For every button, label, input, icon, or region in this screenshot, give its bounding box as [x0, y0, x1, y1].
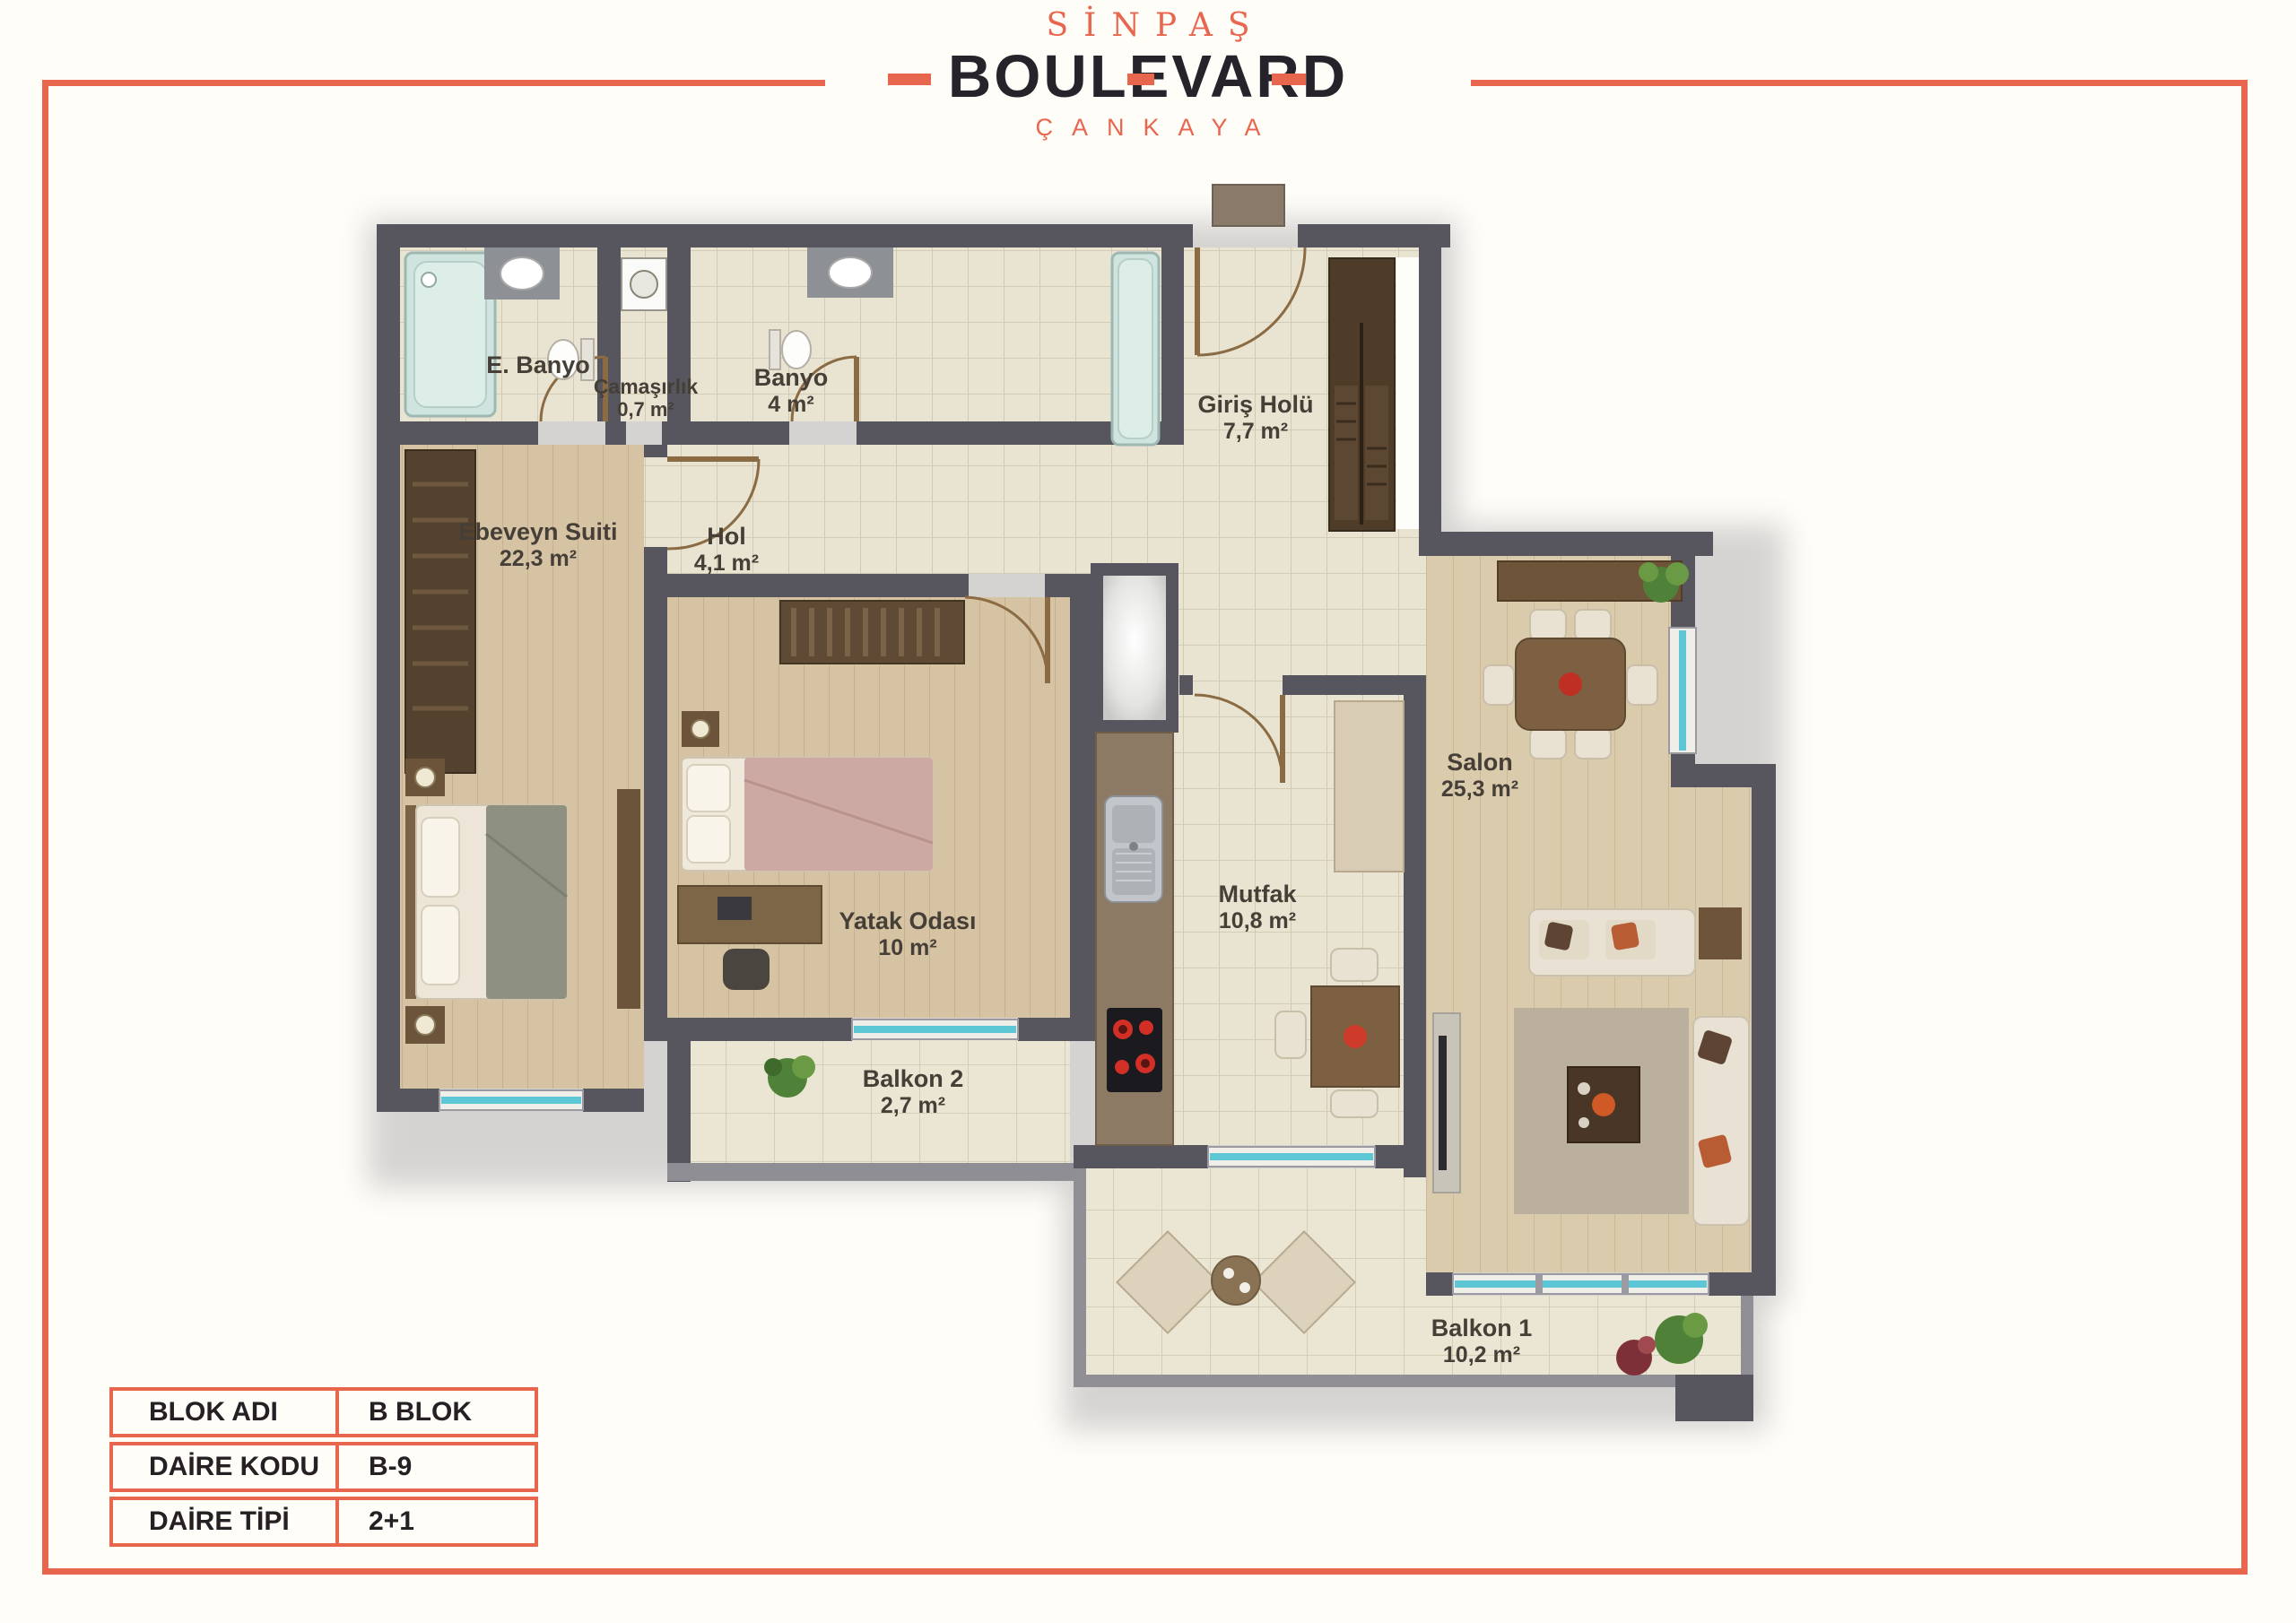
row-label: DAİRE TİPİ	[113, 1500, 339, 1543]
camasirlik-fixtures	[622, 258, 666, 310]
logo-location-text: ÇANKAYA	[834, 114, 1462, 142]
window-salon-right	[1669, 628, 1696, 753]
desk-chair	[723, 949, 770, 990]
single-bed	[682, 758, 933, 871]
logo-dash-d-icon	[1272, 74, 1306, 85]
pillow	[687, 816, 730, 863]
shower-head-icon	[422, 273, 436, 287]
balkon2-railing	[667, 1163, 1074, 1181]
apartment-info-table: BLOK ADI B BLOK DAİRE KODU B-9 DAİRE TİP…	[109, 1387, 538, 1551]
brand-logo: SİNPAŞ BOULEVARD ÇANKAYA	[825, 7, 1471, 142]
pillow	[422, 906, 459, 985]
row-value: 2+1	[339, 1500, 535, 1543]
room-label-mutfak: Mutfak10,8 m²	[1123, 881, 1392, 934]
throw-pillow	[1544, 921, 1573, 950]
double-bed	[405, 805, 567, 999]
chair	[1275, 1011, 1306, 1058]
logo-brand-text: SİNPAŞ	[834, 7, 1462, 44]
chair	[1530, 610, 1566, 640]
chair	[1331, 949, 1378, 981]
floor-plan-drawing	[0, 0, 2296, 1623]
light-shaft	[1103, 576, 1166, 720]
coffee-table	[1568, 1067, 1639, 1142]
wall-left	[377, 224, 400, 1112]
chair	[1575, 610, 1611, 640]
lamp-icon	[415, 768, 435, 787]
lamp-icon	[691, 720, 709, 738]
row-value: B BLOK	[339, 1391, 535, 1434]
sofa	[1529, 909, 1695, 976]
room-label-giris-holu: Giriş Holü7,7 m²	[1121, 391, 1390, 445]
room-label-banyo: Banyo4 m²	[657, 364, 926, 418]
sink	[500, 257, 544, 290]
window-ebeveyn	[439, 1090, 583, 1110]
throw-pillow	[1611, 922, 1639, 950]
floor-hol-2	[1161, 529, 1419, 695]
balkon1-corner-pier	[1675, 1375, 1753, 1421]
window-yatak-balkon	[852, 1020, 1018, 1039]
side-table	[1699, 907, 1742, 959]
window-mutfak	[1208, 1147, 1375, 1167]
logo-dash-left-icon	[888, 74, 931, 85]
cooktop	[1107, 1008, 1162, 1092]
table-row-blok-adi: BLOK ADI B BLOK	[109, 1387, 538, 1437]
centerpiece-icon	[1344, 1025, 1367, 1048]
wall-salon-top	[1419, 532, 1713, 556]
sink-2	[829, 257, 872, 288]
chair	[1331, 1090, 1378, 1117]
row-label: DAİRE KODU	[113, 1445, 339, 1488]
table-row-daire-tipi: DAİRE TİPİ 2+1	[109, 1497, 538, 1547]
centerpiece-icon	[1559, 673, 1582, 696]
room-label-yatak-odasi: Yatak Odası10 m²	[773, 907, 1042, 961]
chair	[1627, 665, 1657, 705]
wall-top-left	[377, 224, 1193, 247]
wall-giris-right	[1419, 224, 1441, 532]
lamp-icon	[415, 1015, 435, 1035]
floor-passage	[1404, 556, 1426, 675]
installation-niche	[1396, 257, 1419, 529]
logo-name-text: BOULEVARD	[834, 46, 1462, 108]
round-table	[1212, 1256, 1260, 1305]
room-label-ebeveyn-suiti: Ebeveyn Suiti22,3 m²	[404, 518, 673, 572]
row-label: BLOK ADI	[113, 1391, 339, 1434]
pillow	[422, 818, 459, 897]
table-row-daire-kodu: DAİRE KODU B-9	[109, 1442, 538, 1492]
lounge-sofa	[1693, 1017, 1749, 1225]
chair	[1483, 665, 1514, 705]
logo-dash-e-icon	[1127, 74, 1154, 85]
room-label-balkon-1: Balkon 110,2 m²	[1347, 1315, 1616, 1368]
row-value: B-9	[339, 1445, 535, 1488]
dresser	[617, 789, 640, 1009]
monitor-icon	[717, 897, 752, 920]
master-closet	[405, 450, 475, 773]
pillow	[687, 765, 730, 811]
room-label-balkon-2: Balkon 22,7 m²	[778, 1065, 1048, 1119]
tv-unit	[1433, 1013, 1460, 1193]
entry-doormat	[1213, 185, 1284, 226]
floor-plan-page: SİNPAŞ BOULEVARD ÇANKAYA	[0, 0, 2296, 1623]
room-label-salon: Salon25,3 m²	[1345, 749, 1614, 803]
window-salon-balkon	[1453, 1274, 1709, 1294]
